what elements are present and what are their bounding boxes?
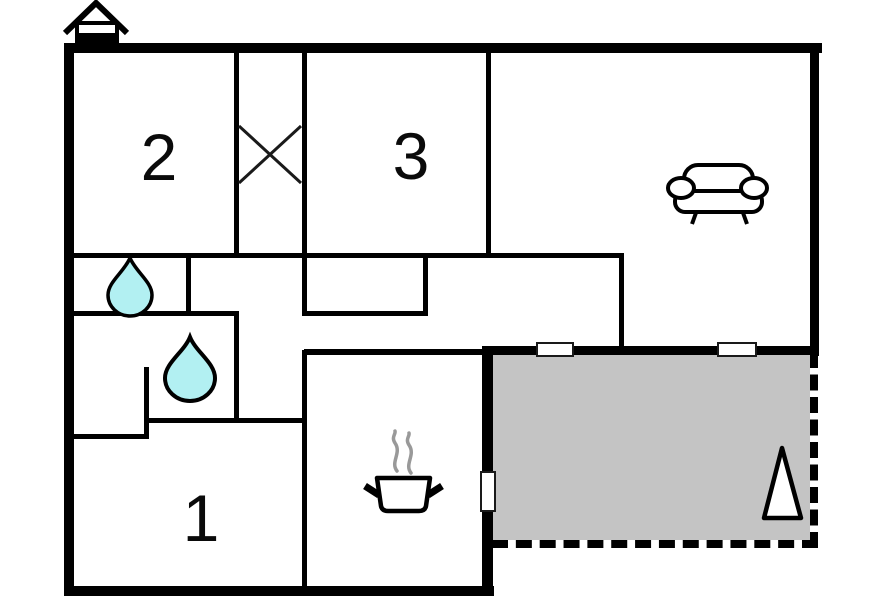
water-drop-icon bbox=[158, 330, 222, 404]
window bbox=[717, 342, 757, 357]
wall bbox=[302, 257, 307, 315]
terrace-cone-icon bbox=[756, 440, 808, 524]
room-3-label: 3 bbox=[393, 123, 430, 189]
wall bbox=[144, 367, 149, 439]
wall bbox=[486, 51, 491, 258]
floor-plan: 2 3 1 bbox=[0, 0, 896, 597]
wall bbox=[619, 255, 624, 350]
wall bbox=[234, 313, 239, 422]
wall bbox=[302, 311, 428, 316]
room-1-label: 1 bbox=[183, 485, 220, 551]
wall bbox=[186, 256, 191, 315]
water-drop-icon bbox=[102, 252, 158, 318]
wall bbox=[64, 586, 494, 596]
terrace-door bbox=[480, 471, 496, 512]
terrace-dashed-edge-right bbox=[810, 352, 818, 548]
cooking-pot-icon bbox=[352, 420, 452, 520]
wall bbox=[304, 349, 484, 355]
window bbox=[536, 342, 574, 357]
wall bbox=[302, 350, 307, 590]
wall bbox=[810, 43, 819, 356]
stairs-cross-icon bbox=[234, 120, 306, 188]
wall bbox=[64, 43, 822, 53]
wall bbox=[482, 346, 819, 355]
wall bbox=[144, 418, 307, 423]
sofa-icon bbox=[658, 156, 774, 228]
house-icon bbox=[60, 0, 132, 48]
room-2-label: 2 bbox=[141, 124, 178, 190]
wall bbox=[423, 257, 428, 315]
wall bbox=[64, 43, 74, 596]
wall bbox=[69, 434, 148, 439]
terrace-dashed-edge-bottom bbox=[492, 540, 818, 548]
